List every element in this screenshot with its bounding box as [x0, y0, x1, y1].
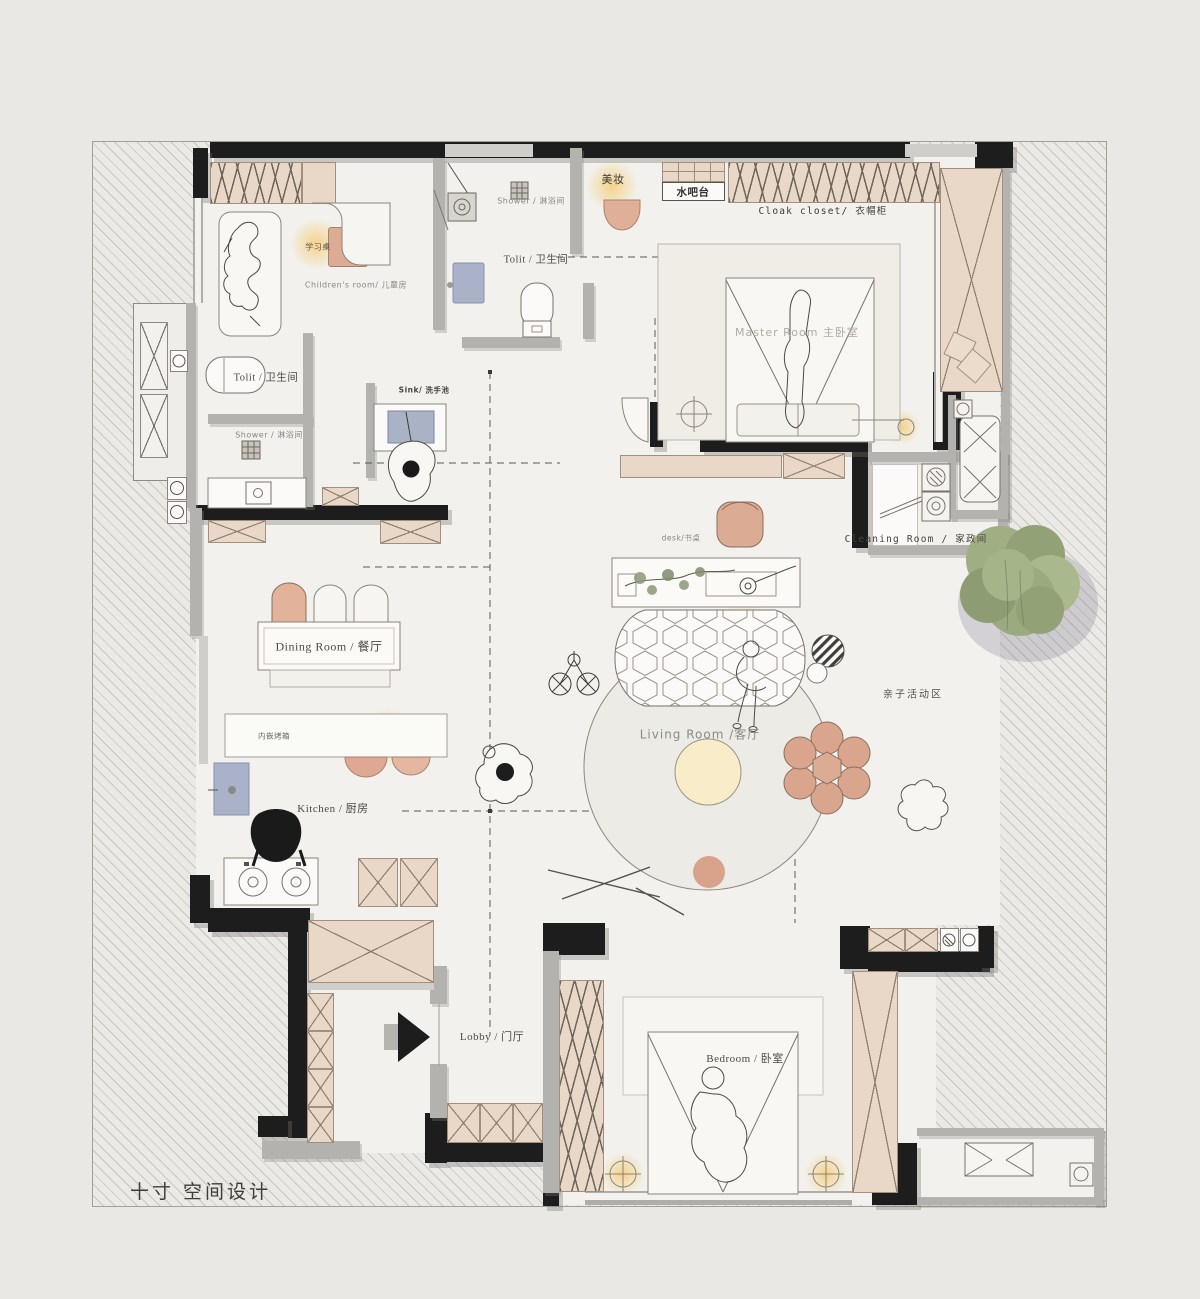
child-figure	[898, 780, 948, 831]
label-cleaning-room: Cleaning Room / 家政间	[845, 531, 988, 545]
console-table	[612, 558, 800, 607]
desk-chair	[717, 502, 763, 547]
label-dining-room: Dining Room / 餐厅	[275, 638, 382, 655]
cleaning-room-appliances	[880, 464, 950, 521]
door-leaf	[880, 497, 922, 518]
floor-plan-canvas: 美妆 水吧台 Cloak closet/ 衣帽柜 Shower / 淋浴间 To…	[0, 0, 1200, 1299]
makeup-stool	[604, 200, 640, 230]
shower-tray	[434, 190, 476, 230]
balcony-table	[965, 1143, 1093, 1186]
pink-stool	[693, 856, 725, 888]
shower-head-icon	[242, 441, 260, 459]
studio-brand: 十寸 空间设计	[130, 1177, 271, 1204]
bedroom-bed	[623, 997, 823, 1194]
toy-tricycle	[549, 651, 599, 695]
study-desk	[312, 203, 390, 265]
label-shower-top: Shower / 淋浴间	[497, 196, 565, 207]
tree	[958, 525, 1098, 662]
label-master-room: Master Room 主卧室	[735, 324, 859, 340]
person-walking-with-child	[476, 744, 533, 804]
label-sink: Sink/ 洗手池	[399, 385, 450, 396]
lineart-overlay	[0, 0, 1200, 1299]
label-study-desk: 学习桌	[305, 242, 331, 253]
coffee-table	[675, 739, 741, 805]
label-lobby: Lobby / 门厅	[460, 1028, 524, 1044]
bath-mat	[447, 263, 484, 303]
label-kids-zone: 亲子活动区	[883, 686, 943, 701]
toilet-fixture	[521, 283, 553, 337]
label-kitchen: Kitchen / 厨房	[297, 800, 368, 816]
person-at-sink	[388, 441, 435, 501]
label-built-in-oven: 内嵌烤箱	[258, 731, 290, 742]
kitchen-sink	[208, 763, 249, 815]
striped-ball	[807, 635, 844, 683]
label-cloak-closet: Cloak closet/ 衣帽柜	[759, 203, 888, 217]
children-bed	[219, 212, 281, 336]
label-water-bar: 水吧台	[677, 185, 710, 200]
label-toilet-top: Tolit / 卫生间	[504, 252, 569, 267]
vanity	[208, 478, 306, 508]
entry-arrow	[384, 1004, 439, 1066]
dining-set	[258, 583, 400, 687]
kitchen-island	[225, 714, 447, 777]
window-bench	[622, 398, 648, 442]
label-makeup: 美妆	[602, 171, 625, 187]
label-living-room: Living Room /客厅	[640, 726, 761, 743]
balcony-stools	[944, 332, 991, 383]
label-toilet-left: Tolit / 卫生间	[234, 370, 299, 385]
label-children-room: Children's room/ 儿童房	[305, 280, 407, 291]
person-cooking	[251, 809, 305, 866]
sofa	[615, 610, 805, 706]
label-shower-left: Shower / 淋浴间	[235, 430, 303, 441]
drying-room	[954, 400, 1000, 502]
label-bedroom: Bedroom / 卧室	[706, 1050, 784, 1066]
label-desk: desk/书桌	[662, 533, 701, 544]
